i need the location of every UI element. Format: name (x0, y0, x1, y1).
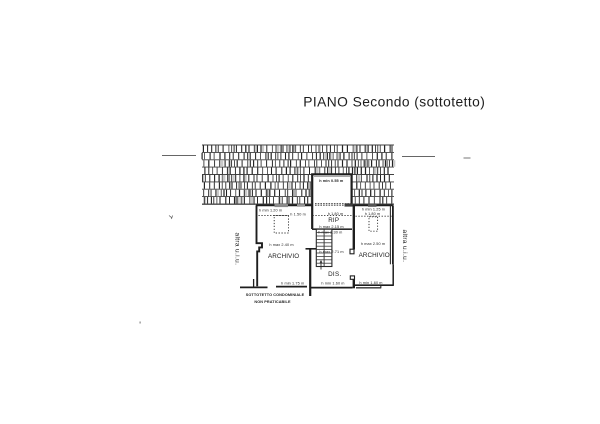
svg-text:h min 1.60 m: h min 1.60 m (359, 281, 382, 285)
svg-text:altra u.i.u.: altra u.i.u. (234, 233, 241, 266)
svg-text:h 1.80 m: h 1.80 m (365, 212, 381, 216)
svg-text:SOTTOTETTO CONDOMINIALE: SOTTOTETTO CONDOMINIALE (246, 293, 305, 297)
svg-text:h max 2.15 m: h max 2.15 m (319, 225, 343, 229)
svg-text:ARCHIVIO: ARCHIVIO (268, 253, 299, 260)
svg-text:h max 2.71 m: h max 2.71 m (319, 250, 343, 254)
svg-text:h min 1.75 m: h min 1.75 m (281, 282, 304, 286)
svg-text:h 1.80 m: h 1.80 m (328, 212, 344, 216)
svg-text:h min 0.55 m: h min 0.55 m (319, 179, 344, 183)
svg-text:RIP: RIP (328, 217, 339, 224)
svg-text:PIANO Secondo (sottotetto): PIANO Secondo (sottotetto) (303, 95, 485, 110)
svg-text:ARCHIVIO: ARCHIVIO (359, 252, 390, 259)
svg-text:NON PRATICABILE: NON PRATICABILE (254, 300, 291, 304)
svg-text:h min 1.60 m: h min 1.60 m (321, 281, 344, 285)
svg-text:h max 2.50 m: h max 2.50 m (361, 242, 385, 246)
svg-text:h 1.50 m: h 1.50 m (290, 212, 306, 216)
svg-text:h max 2.40 m: h max 2.40 m (269, 243, 293, 247)
svg-text:h min 1.20 m: h min 1.20 m (259, 208, 282, 212)
svg-text:h max 2.30 m: h max 2.30 m (318, 231, 342, 235)
svg-text:DIS.: DIS. (328, 271, 341, 278)
svg-text:altra u.i.u.: altra u.i.u. (401, 230, 408, 263)
